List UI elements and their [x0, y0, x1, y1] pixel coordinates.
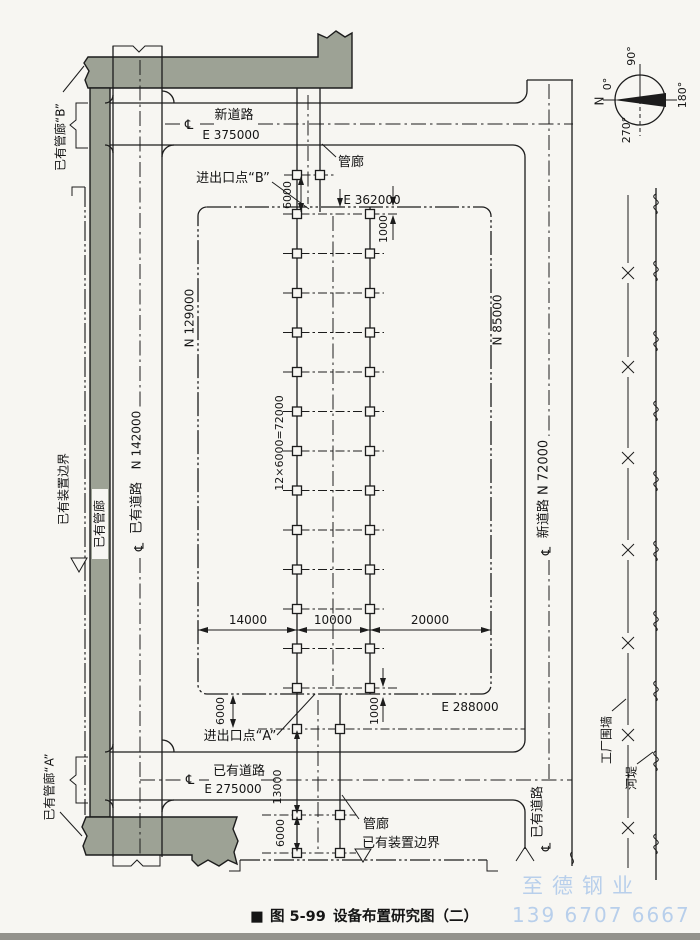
dim-bottom-13000: 13000 [271, 770, 284, 805]
existing-pipe-rack-left-label: 已有管廊 [92, 500, 107, 548]
plot-coord-left: N 129000 [183, 289, 197, 348]
existing-unit-boundary-left-label: 已有装置边界 [57, 453, 71, 525]
existing-pipe-rack-a-label: 已有管廊“A” [42, 753, 57, 820]
column-row-lines [258, 175, 525, 853]
right-road-name: 新道路 N 72000 [536, 440, 552, 538]
dim-top-6000: 6000 [281, 181, 294, 209]
figure-marker: ■ [250, 909, 264, 925]
entry-point-b-label: 进出口点“B” [196, 171, 270, 186]
plot-coord-bottom: E 288000 [441, 700, 498, 714]
factory-wall-label: 工厂围墙 [600, 716, 614, 764]
dim-10000: 10000 [314, 613, 352, 627]
pipe-rack-left-band [90, 88, 110, 817]
bottom-road-name: 已有道路 [213, 763, 265, 779]
drawing-page: N 0° 90° 180° 270° 新道路 E 375000 ℄ N 1420… [0, 0, 700, 940]
dim-bottom-1000: 1000 [368, 697, 381, 725]
compass-n-label: N [593, 97, 607, 106]
top-road-centerline-symbol: ℄ [184, 118, 194, 133]
right-road-centerline-symbol: ℄ [540, 546, 555, 556]
dim-bottom-6000-upper: 6000 [214, 697, 227, 725]
dim-bottom-6000-lower: 6000 [274, 819, 287, 847]
break-symbols [70, 46, 162, 866]
dim-20000: 20000 [411, 613, 449, 627]
site-plan-drawing: N 0° 90° 180° 270° 新道路 E 375000 ℄ N 1420… [0, 0, 700, 940]
pipe-rack-bottom-label: 管廊 [363, 816, 389, 832]
compass-180-label: 180° [676, 82, 689, 109]
existing-unit-boundary-bottom-label: 已有装置边界 [362, 836, 440, 851]
figure-caption: ■ 图 5-99 设备布置研究图（二） [250, 907, 478, 925]
page-scan-edge [0, 933, 700, 940]
existing-pipe-rack-b-label: 已有管廊“B” [53, 103, 68, 171]
left-road-name: 已有道路 [129, 482, 145, 534]
river-bank-label: 河堤 [625, 766, 639, 790]
dim-14000: 14000 [229, 613, 267, 627]
compass-270-label: 270° [620, 117, 633, 144]
bottom-right-road-name: 已有道路 [530, 786, 546, 838]
dimensions [198, 176, 491, 852]
top-road-coord: E 375000 [202, 128, 259, 142]
pipe-rack-top-label: 管廊 [338, 154, 364, 170]
entry-point-a-label: 进出口点“A” [204, 729, 277, 744]
watermark: 至德钢业 139 6707 6667 [512, 874, 691, 927]
compass-0-label: 0° [601, 78, 614, 91]
watermark-line1: 至德钢业 [522, 874, 642, 898]
bottom-road-centerline-symbol: ℄ [185, 773, 195, 788]
plot-coord-top: E 362000 [343, 193, 400, 207]
figure-number: 图 5-99 [270, 908, 326, 925]
pipe-rack-b-band [84, 31, 352, 88]
bottom-right-road-centerline-symbol: ℄ [540, 842, 555, 852]
watermark-line2: 139 6707 6667 [512, 903, 691, 927]
dim-bay-spacing: 12×6000=72000 [273, 395, 286, 490]
left-road-centerline-symbol: ℄ [133, 542, 148, 552]
coordinate-arrow [337, 198, 343, 207]
compass-90-label: 90° [625, 46, 638, 66]
left-road-coord: N 142000 [130, 411, 144, 470]
river-bank [654, 188, 659, 880]
top-road-name: 新道路 [214, 107, 253, 123]
bottom-road-coord: E 275000 [204, 782, 261, 796]
figure-title: 设备布置研究图（二） [333, 907, 478, 925]
compass: N 0° 90° 180° 270° [593, 46, 690, 143]
plot-coord-right: N 85000 [491, 295, 505, 346]
dim-top-1000: 1000 [377, 215, 390, 243]
